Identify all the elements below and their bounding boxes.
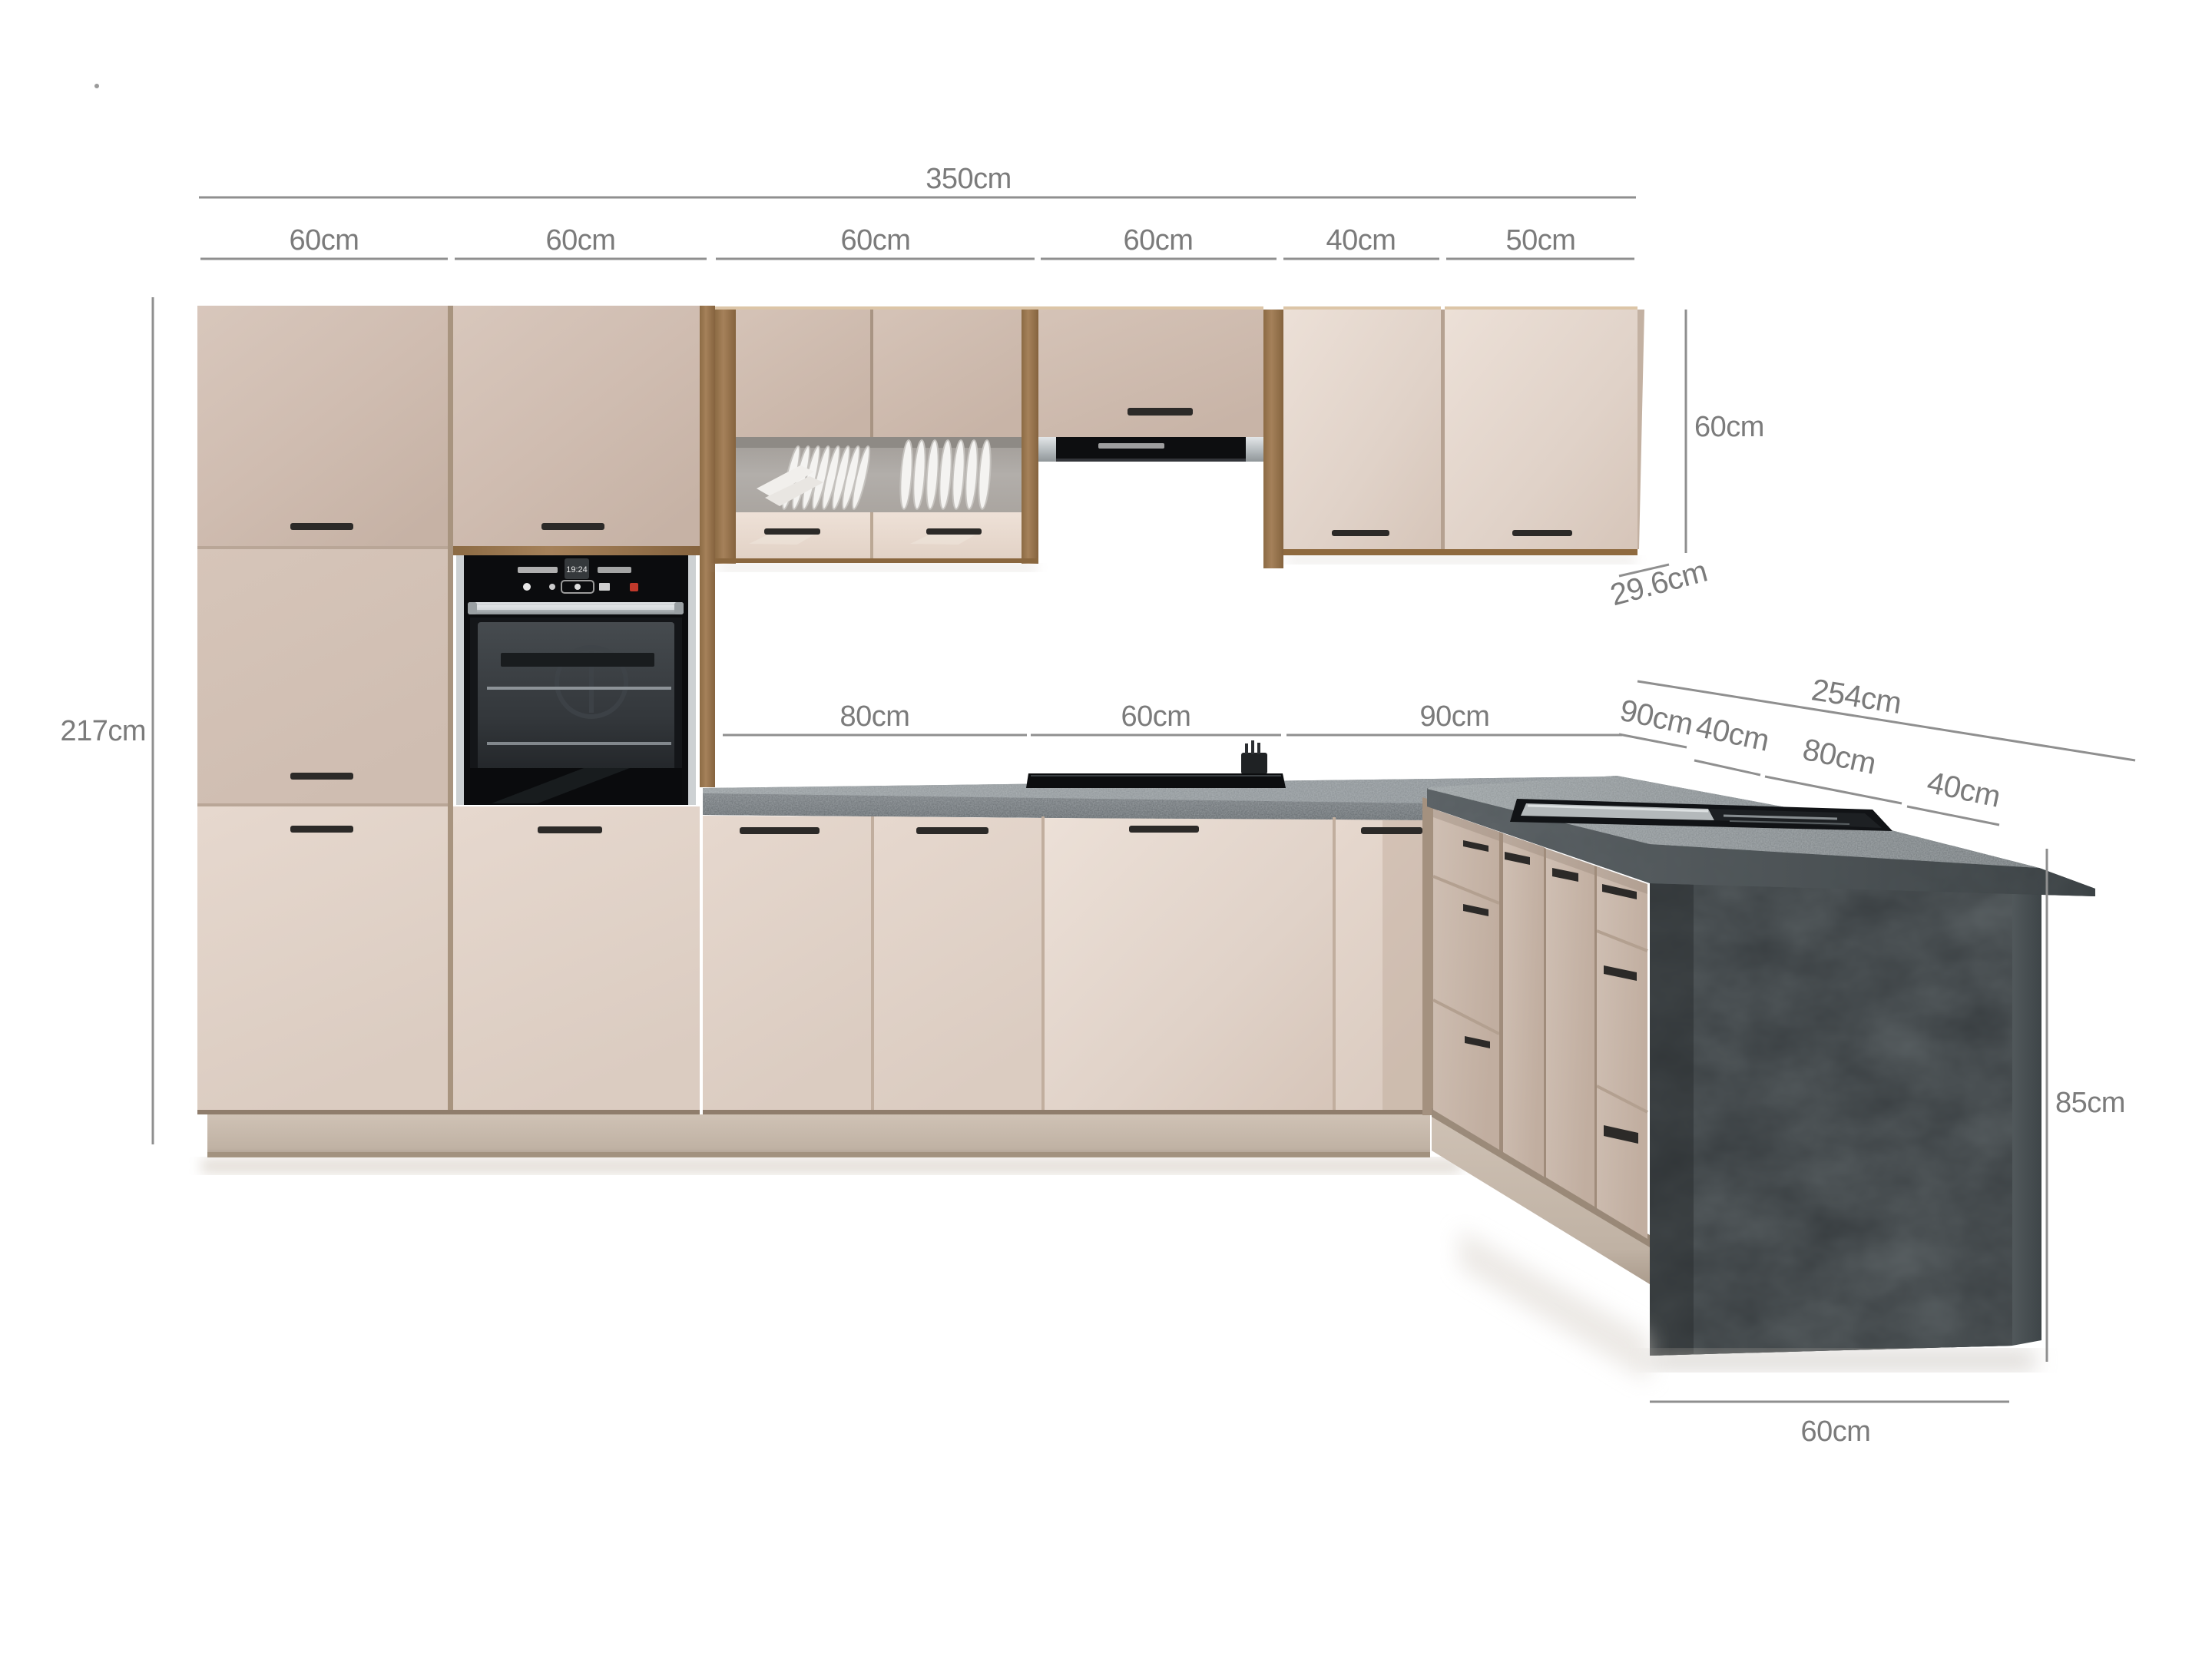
svg-text:217cm: 217cm <box>60 715 146 747</box>
svg-text:60cm: 60cm <box>1801 1416 1871 1448</box>
svg-text:60cm: 60cm <box>1124 224 1194 257</box>
svg-text:85cm: 85cm <box>2055 1087 2125 1119</box>
svg-text:19:24: 19:24 <box>566 565 588 575</box>
svg-text:60cm: 60cm <box>1121 700 1191 733</box>
svg-text:80cm: 80cm <box>840 700 910 733</box>
svg-text:60cm: 60cm <box>841 224 911 257</box>
svg-text:90cm: 90cm <box>1420 700 1490 733</box>
svg-text:60cm: 60cm <box>290 224 359 257</box>
svg-text:50cm: 50cm <box>1506 224 1576 257</box>
svg-text:60cm: 60cm <box>1694 411 1764 443</box>
svg-text:60cm: 60cm <box>546 224 616 257</box>
svg-text:350cm: 350cm <box>926 163 1012 195</box>
svg-text:40cm: 40cm <box>1326 224 1396 257</box>
